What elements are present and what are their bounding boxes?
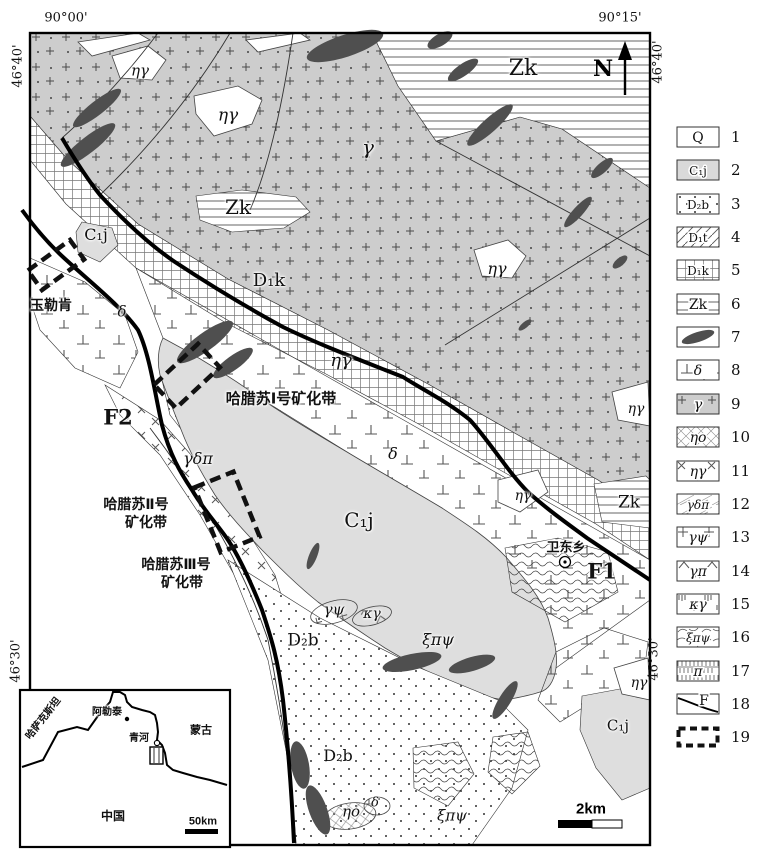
legend-unit-label: κγ <box>688 597 707 613</box>
legend-item: δ8 <box>676 358 741 382</box>
legend-unit-label: C₁j <box>689 164 707 178</box>
legend-item: F18 <box>676 692 750 716</box>
coord-right-top: 46°40' <box>651 40 666 83</box>
legend-item-number: 10 <box>731 428 750 446</box>
legend-unit-label: Zk <box>689 297 708 313</box>
legend-swatch-cells-icon: ξπψ <box>676 626 720 648</box>
legend-item: C₁j2 <box>676 158 741 182</box>
legend-item-number: 13 <box>731 528 750 546</box>
legend-swatch-dots-icon: D₂b <box>676 193 720 215</box>
legend-swatch-caret-icon: γπ <box>676 560 720 582</box>
legend-item-number: 15 <box>731 595 750 613</box>
study-area-box <box>150 747 163 764</box>
altay-dot <box>125 717 129 721</box>
legend-item: ηγ11 <box>676 459 750 483</box>
legend-swatch-granite-icon: γ <box>676 393 720 415</box>
legend-swatch-xhatch-icon: ηo <box>676 426 720 448</box>
inset-scale-bar <box>185 829 218 834</box>
legend-item-number: 4 <box>731 228 741 246</box>
legend-item-number: 6 <box>731 295 741 313</box>
legend-item: γπ14 <box>676 559 750 583</box>
legend-item: ξπψ16 <box>676 625 750 649</box>
legend-item: 19 <box>676 725 750 749</box>
legend-swatch-dashed-icon <box>676 726 720 748</box>
legend-item: κγ15 <box>676 592 750 616</box>
legend-unit-label: ηo <box>690 430 707 446</box>
legend-item-number: 1 <box>731 128 741 146</box>
legend-item: γ9 <box>676 392 741 416</box>
north-label: N <box>593 56 613 82</box>
legend-unit-label: π <box>692 664 703 680</box>
coord-left-top: 46°40' <box>11 44 26 87</box>
legend-swatch-hlines-icon: Zk <box>676 293 720 315</box>
legend-swatch-perp-icon: δ <box>676 359 720 381</box>
legend-item-number: 9 <box>731 395 741 413</box>
region-zk-right <box>594 476 650 528</box>
legend-swatch-fault-icon: F <box>676 693 720 715</box>
coord-top-left: 90°00' <box>44 11 87 26</box>
legend-swatch-lens-icon <box>676 326 720 348</box>
legend-item-number: 2 <box>731 161 741 179</box>
scale-bar <box>558 820 622 828</box>
legend-unit-label: D₁k <box>687 264 709 278</box>
legend-item-number: 3 <box>731 195 741 213</box>
legend-swatch-plus-icon: γψ <box>676 526 720 548</box>
scale-label: 2km <box>576 801 606 818</box>
legend-swatch-vbrick-icon: π <box>676 660 720 682</box>
legend-unit-label: δ <box>694 363 702 379</box>
legend-unit-label: F <box>699 693 709 709</box>
legend-unit-label: γπ <box>689 564 707 580</box>
legend-unit-label: ηγ <box>690 464 707 480</box>
village-symbol <box>560 557 571 568</box>
coord-left-bottom: 46°30' <box>9 639 24 682</box>
coord-right-bottom: 46°30' <box>647 637 662 680</box>
legend-swatch-diag-icon: D₁t <box>676 226 720 248</box>
legend-item: D₁k5 <box>676 258 741 282</box>
inset-map <box>20 690 230 847</box>
legend-item-number: 7 <box>731 328 741 346</box>
legend-swatch-xplus-icon: ηγ <box>676 460 720 482</box>
legend-swatch-plain-icon: Q <box>676 126 720 148</box>
legend-item-number: 5 <box>731 261 741 279</box>
legend-swatch-vee-icon: κγ <box>676 593 720 615</box>
legend-item: ηo10 <box>676 425 750 449</box>
legend-unit-label: Q <box>692 130 703 146</box>
legend-item-number: 8 <box>731 361 741 379</box>
legend-item-number: 16 <box>731 628 750 646</box>
legend-unit-label: γψ <box>688 530 708 546</box>
legend-item: γψ13 <box>676 525 750 549</box>
legend-swatch-thindiag-icon: γδπ <box>676 493 720 515</box>
legend-item: γδπ12 <box>676 492 750 516</box>
coord-top-right: 90°15' <box>598 11 641 26</box>
map-canvas <box>0 0 758 859</box>
legend-item-number: 11 <box>731 462 750 480</box>
legend-item-number: 18 <box>731 695 750 713</box>
legend-unit-label: D₂b <box>687 198 709 212</box>
legend-item-number: 17 <box>731 662 750 680</box>
legend-unit-label: ξπψ <box>686 631 710 645</box>
legend-item-number: 12 <box>731 495 750 513</box>
legend-swatch-grid-icon: D₁k <box>676 259 720 281</box>
legend-item: D₁t4 <box>676 225 741 249</box>
legend-unit-label: γδπ <box>687 498 710 512</box>
legend-swatch-gray-icon: C₁j <box>676 159 720 181</box>
legend-item: π17 <box>676 659 750 683</box>
geological-map-figure: 90°00' 90°15' 46°40' 46°40' 46°30' 46°30… <box>0 0 758 859</box>
legend-item-number: 19 <box>731 728 750 746</box>
legend-item: 7 <box>676 325 741 349</box>
legend-unit-label: γ <box>694 397 703 413</box>
legend-item: D₂b3 <box>676 192 741 216</box>
legend-item: Q1 <box>676 125 741 149</box>
legend-item: Zk6 <box>676 292 741 316</box>
qinghe-circle <box>154 740 159 745</box>
legend-item-number: 14 <box>731 562 750 580</box>
legend-unit-label: D₁t <box>688 231 707 245</box>
